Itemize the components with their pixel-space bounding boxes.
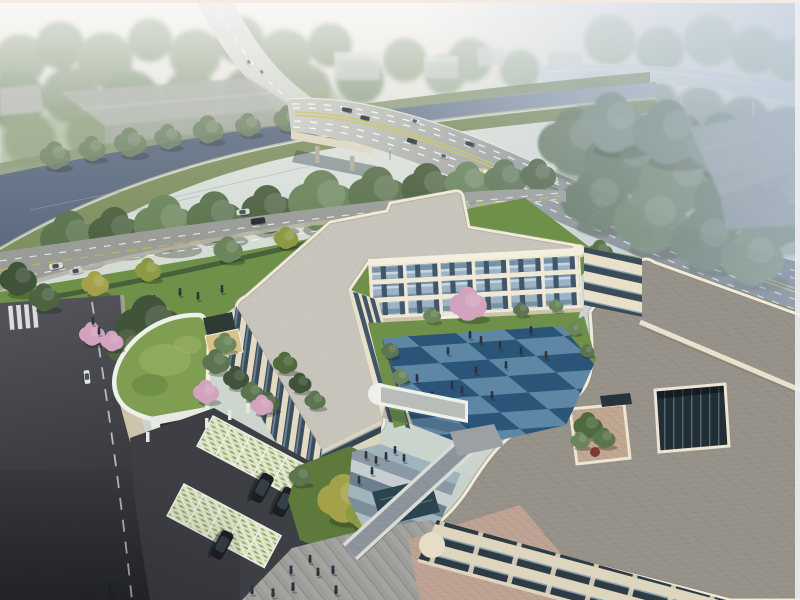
northeast-facade — [584, 247, 642, 317]
facade-rounded-corner — [419, 532, 445, 558]
green-roof-mottle — [132, 374, 168, 396]
rendering-canvas — [0, 0, 800, 600]
red-shrub — [590, 447, 600, 457]
top-border — [0, 0, 800, 3]
green-roof-mottle — [174, 336, 202, 354]
aerial-rendering — [0, 0, 800, 600]
right-border — [795, 0, 800, 600]
corner-tower-highlight — [572, 244, 584, 256]
corner-vignette — [0, 470, 240, 600]
roof-skylight-opening — [655, 384, 729, 452]
